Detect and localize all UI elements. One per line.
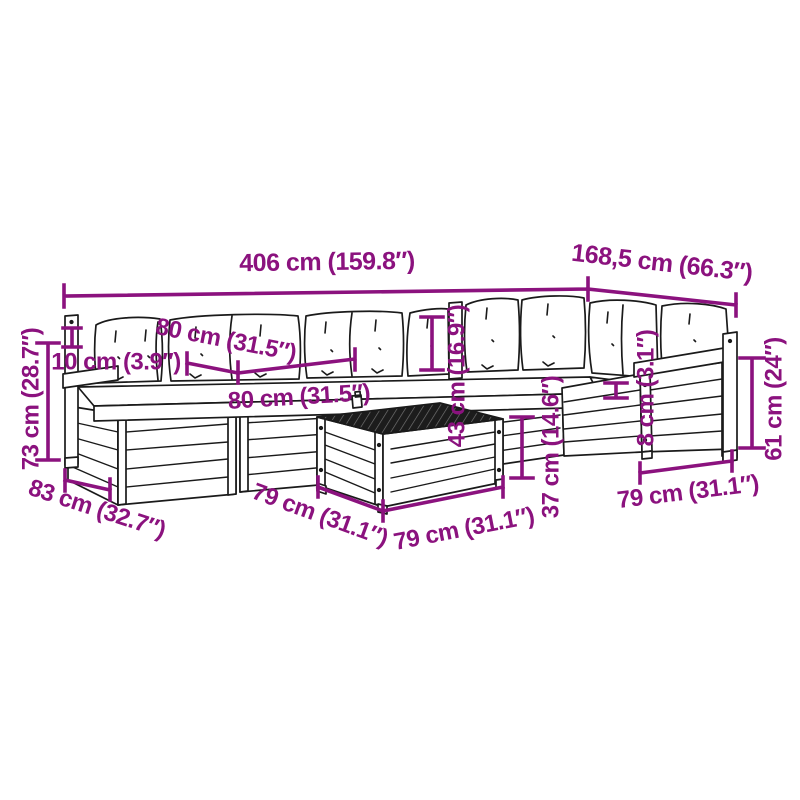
dim-label-overall-width: 406 cm (159.8″)	[239, 247, 415, 277]
dim-label-table-width: 79 cm (31.1″)	[392, 502, 537, 556]
dim-label-backrest-height: 43 cm (16.9″)	[444, 305, 471, 447]
diagram-canvas: 406 cm (159.8″) 168,5 cm (66.3″) 73 cm (…	[0, 0, 800, 800]
dim-label-module-width-right: 79 cm (31.1″)	[616, 470, 761, 514]
dim-label-armrest-rise: 10 cm (3.9″)	[51, 349, 181, 376]
dim-label-cushion-thickness: 8 cm (3.1″)	[633, 330, 660, 447]
dim-label-side-section-width: 168,5 cm (66.3″)	[570, 239, 754, 287]
furniture-dimension-diagram: 406 cm (159.8″) 168,5 cm (66.3″) 73 cm (…	[0, 0, 800, 800]
dim-label-armrest-height: 61 cm (24″)	[761, 337, 788, 460]
dim-label-seat-height: 37 cm (14.6″)	[538, 376, 565, 518]
dim-label-total-height: 73 cm (28.7″)	[18, 328, 45, 470]
